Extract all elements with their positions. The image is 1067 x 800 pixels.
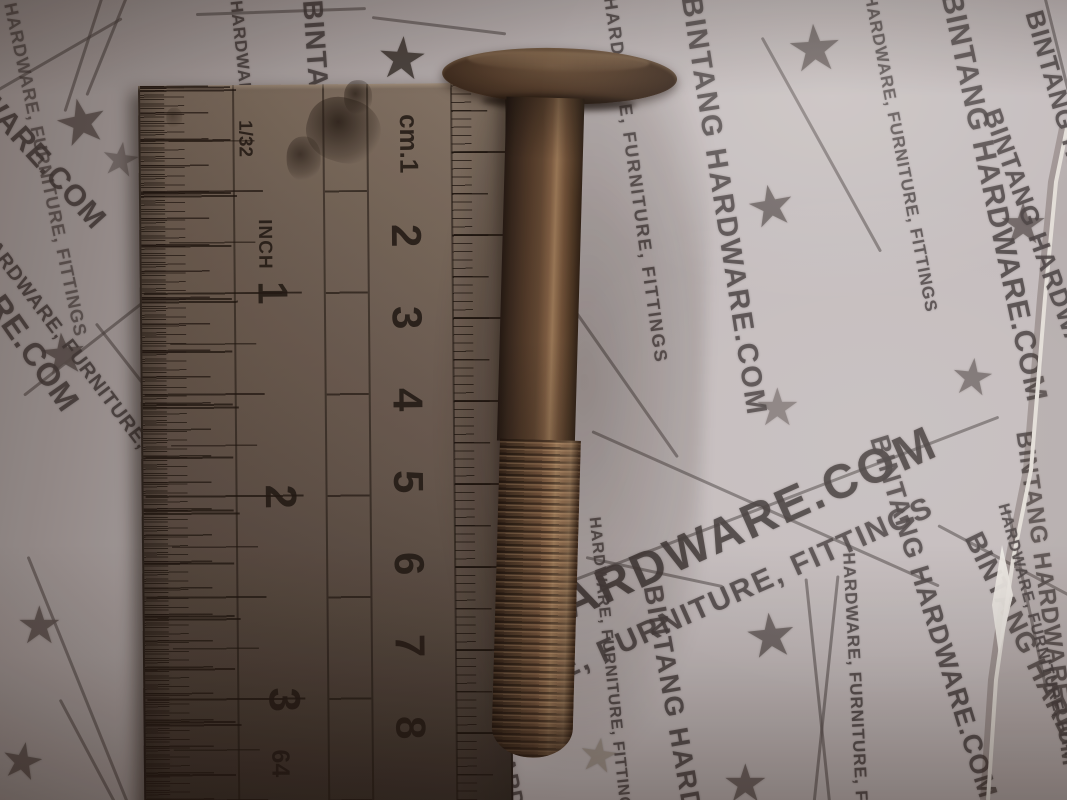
- ruler-cm-unit-label: cm.1: [396, 114, 423, 173]
- photo-bolt-and-ruler: ★ ★ ★ ★ ★ ★ ★ ★ ★ ★ ★ ★ ★ ★ BINTANG HARD…: [0, 0, 1067, 800]
- ink-smudge: [166, 108, 182, 128]
- ruler-scale-64-label: 64: [267, 749, 292, 777]
- bolt-shank: [497, 97, 585, 443]
- carriage-bolt: [418, 37, 686, 768]
- ruler-cm-number-3: 3: [386, 306, 428, 330]
- ruler-inch-number-1: 1: [251, 281, 293, 305]
- ruler-inch-line-stubs: [325, 190, 373, 800]
- ink-smudge: [344, 80, 372, 114]
- ruler-scale-32-label: 1/32: [235, 120, 254, 157]
- ruler-inch-number-2: 2: [258, 484, 302, 509]
- ruler-inch-number-3: 3: [261, 687, 305, 712]
- bolt-tip: [491, 708, 573, 758]
- ink-smudge: [286, 136, 320, 180]
- ruler-cm-number-2: 2: [385, 224, 427, 248]
- ruler-quarter-inch-lines: [168, 140, 260, 800]
- ruler-cm-number-5: 5: [387, 470, 429, 494]
- ruler-inch-unit-label: INCH: [255, 219, 274, 270]
- ruler-cm-number-4: 4: [386, 388, 428, 412]
